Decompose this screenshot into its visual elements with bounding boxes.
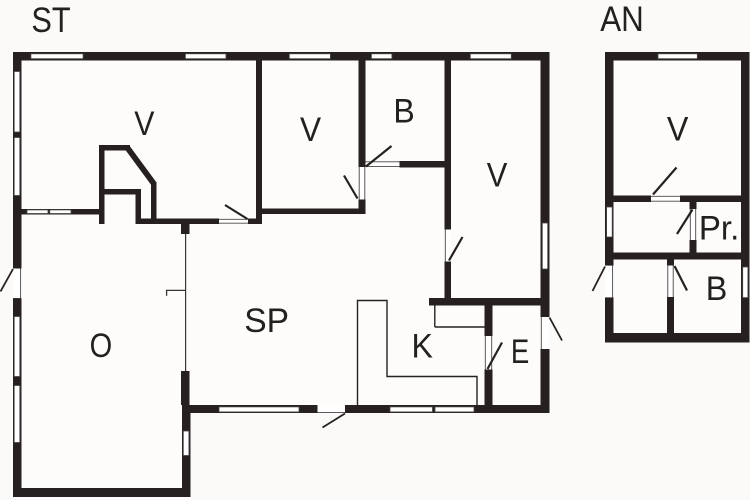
- svg-text:E: E: [511, 333, 529, 371]
- svg-text:SP: SP: [244, 302, 289, 340]
- svg-text:ST: ST: [31, 1, 70, 40]
- svg-text:B: B: [706, 270, 728, 308]
- svg-text:AN: AN: [600, 0, 644, 39]
- svg-text:B: B: [393, 93, 414, 131]
- svg-text:K: K: [412, 327, 434, 365]
- svg-text:V: V: [300, 111, 321, 149]
- svg-text:V: V: [487, 157, 508, 195]
- svg-text:O: O: [90, 327, 113, 365]
- svg-text:V: V: [667, 111, 689, 149]
- svg-text:V: V: [134, 105, 154, 143]
- svg-text:Pr.: Pr.: [699, 209, 739, 247]
